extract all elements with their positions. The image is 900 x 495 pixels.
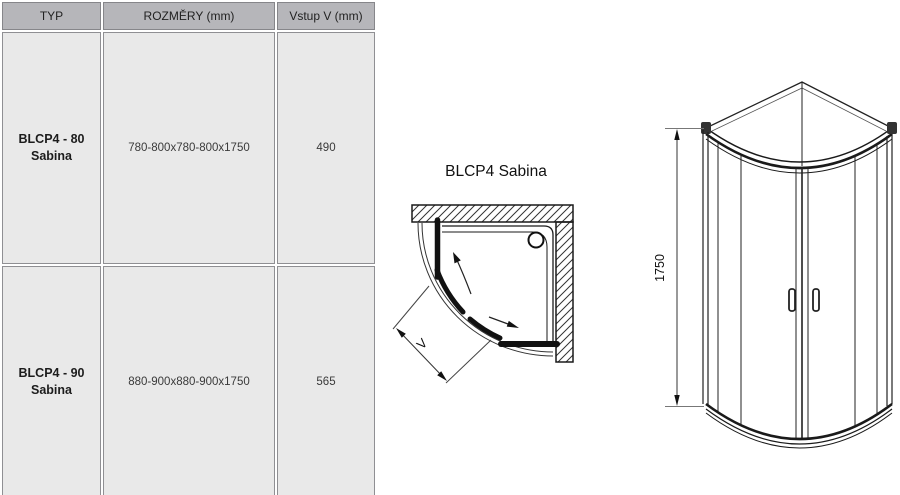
entry-dimension: V xyxy=(393,286,491,383)
door-handle-left xyxy=(789,289,795,311)
entry-width-cell: 565 xyxy=(277,266,375,495)
sliding-door-1 xyxy=(437,270,463,312)
bottom-rail xyxy=(706,404,892,448)
rail-end-cap-right xyxy=(887,122,897,134)
type-name: BLCP4 - 90 xyxy=(4,365,99,383)
top-rail xyxy=(701,122,897,173)
type-series: Sabina xyxy=(4,382,99,400)
type-cell: BLCP4 - 80 Sabina xyxy=(2,32,101,264)
plan-view-title: BLCP4 Sabina xyxy=(445,163,547,180)
right-wall xyxy=(556,222,573,362)
table-row: BLCP4 - 90 Sabina 880-900x880-900x1750 5… xyxy=(2,266,375,495)
entry-width-cell: 490 xyxy=(277,32,375,264)
dimensions-cell: 780-800x780-800x1750 xyxy=(103,32,275,264)
plan-view-drawing: BLCP4 Sabina V xyxy=(390,155,610,405)
top-edges xyxy=(706,82,892,166)
column-header-vstup: Vstup V (mm) xyxy=(277,2,375,30)
table-header-row: TYP ROZMĚRY (mm) Vstup V (mm) xyxy=(2,2,375,30)
drain-circle xyxy=(529,233,544,248)
dimensions-cell: 880-900x880-900x1750 xyxy=(103,266,275,495)
sliding-door-2 xyxy=(470,319,500,338)
column-header-rozmery: ROZMĚRY (mm) xyxy=(103,2,275,30)
spec-table-container: TYP ROZMĚRY (mm) Vstup V (mm) BLCP4 - 80… xyxy=(0,0,377,495)
height-dimension-label: 1750 xyxy=(653,254,667,282)
glass-edges xyxy=(703,130,892,439)
door-direction-arrow-right xyxy=(489,317,519,328)
height-dimension: 1750 xyxy=(653,129,704,407)
door-handle-right xyxy=(813,289,819,311)
shower-tray xyxy=(442,226,553,341)
entry-dimension-label: V xyxy=(413,335,430,352)
door-direction-arrow-up xyxy=(453,252,471,294)
column-header-typ: TYP xyxy=(2,2,101,30)
front-view-drawing: 1750 xyxy=(640,60,900,460)
spec-table: TYP ROZMĚRY (mm) Vstup V (mm) BLCP4 - 80… xyxy=(0,0,377,495)
type-cell: BLCP4 - 90 Sabina xyxy=(2,266,101,495)
type-name: BLCP4 - 80 xyxy=(4,131,99,149)
type-series: Sabina xyxy=(4,148,99,166)
table-row: BLCP4 - 80 Sabina 780-800x780-800x1750 4… xyxy=(2,32,375,264)
